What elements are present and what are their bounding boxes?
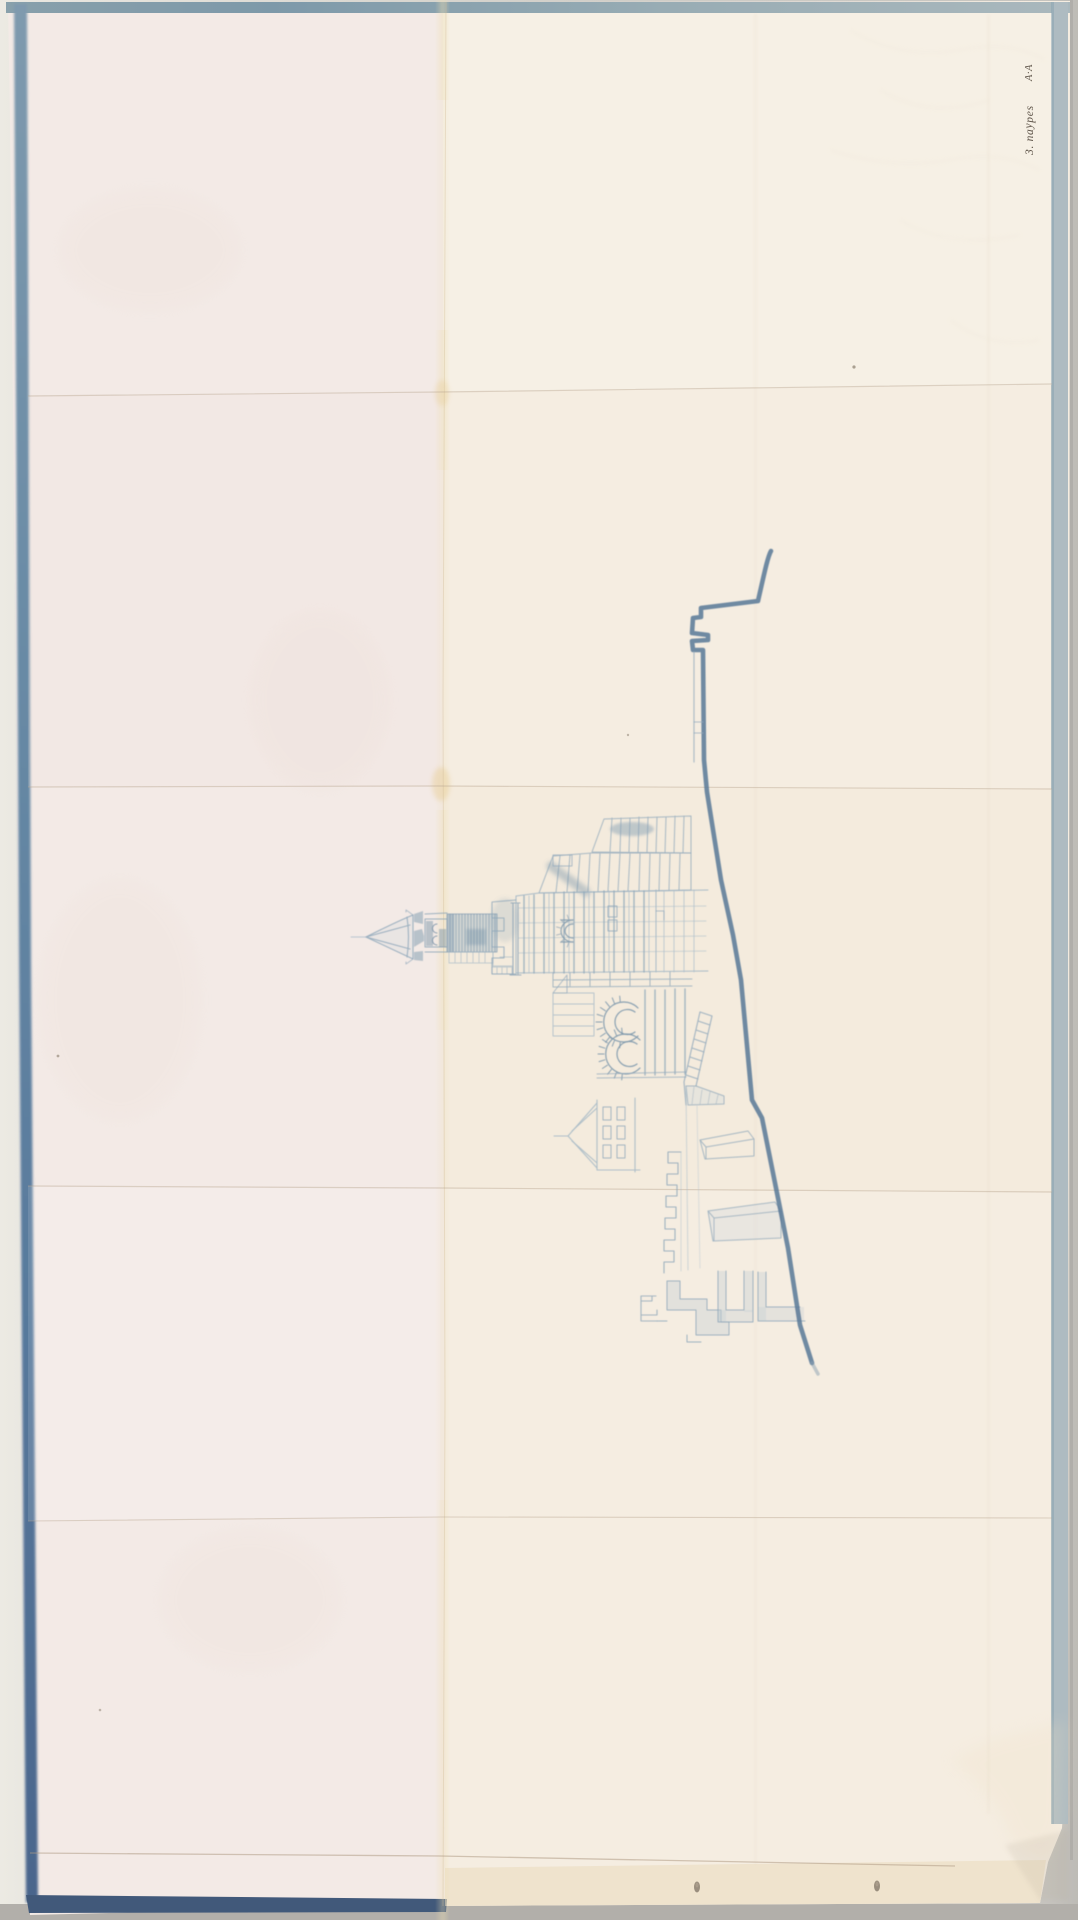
svg-text:3. naypes: 3. naypes (1023, 105, 1036, 156)
svg-text:A·A: A·A (1024, 64, 1035, 82)
